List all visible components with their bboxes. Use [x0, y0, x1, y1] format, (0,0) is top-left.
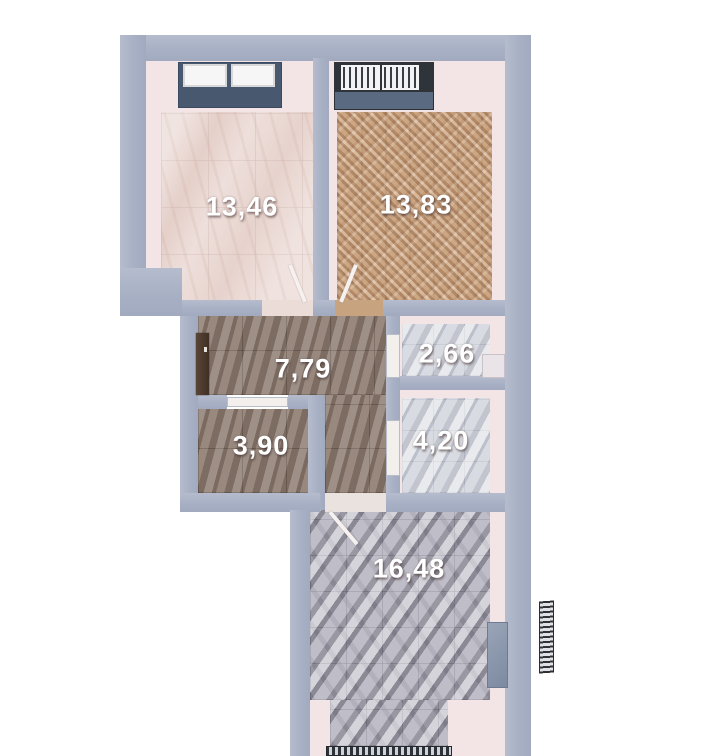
- hallway-floor-lower: [325, 395, 386, 493]
- wall-mid-horizontal-left: [182, 300, 262, 316]
- radiator-grille-icon: [384, 67, 417, 88]
- radiator-grille-icon: [343, 67, 378, 88]
- room-16-48-balcony-strip: [330, 700, 448, 746]
- area-label-16-48: 16,48: [373, 554, 446, 585]
- wall-divider-top-rooms: [313, 58, 329, 304]
- area-label-13-46: 13,46: [206, 192, 279, 223]
- wall-2-66-bottom: [400, 376, 505, 390]
- room-16-48-floor: [310, 510, 490, 700]
- door-icon: [227, 397, 288, 407]
- wall-niche-panel: [487, 622, 508, 688]
- door-handle-icon: [204, 347, 207, 352]
- wall-3-90-top-right: [288, 395, 308, 409]
- floor-plan: 13,46 13,83 7,79 2,66 3,90 4,20 16,48: [0, 0, 723, 756]
- area-label-3-90: 3,90: [233, 431, 290, 462]
- wall-right-outer: [505, 35, 531, 756]
- entrance-door-icon: [196, 333, 209, 395]
- doorway-16-48: [325, 493, 386, 512]
- wall-left-outer-upper: [120, 35, 146, 268]
- area-label-4-20: 4,20: [413, 426, 470, 457]
- door-icon: [386, 334, 400, 378]
- area-label-13-83: 13,83: [380, 190, 453, 221]
- duct-shaft: [482, 354, 505, 378]
- area-label-2-66: 2,66: [419, 339, 476, 370]
- door-icon: [386, 420, 400, 476]
- window-pane-icon: [231, 64, 275, 87]
- balcony-window-icon: [326, 746, 452, 756]
- wall-16-48-left: [290, 510, 310, 756]
- area-label-7-79: 7,79: [275, 354, 332, 385]
- window-icon: [178, 62, 282, 108]
- wall-bottom-block-right: [386, 493, 505, 512]
- wall-3-90-top-left: [198, 395, 227, 409]
- doorway-13-46: [262, 300, 313, 316]
- window-pane-icon: [183, 64, 227, 87]
- wall-left-corner-step: [120, 268, 182, 316]
- radiator-icon: [539, 600, 554, 673]
- wall-mid-horizontal-center: [313, 300, 335, 316]
- window-icon: [334, 62, 434, 110]
